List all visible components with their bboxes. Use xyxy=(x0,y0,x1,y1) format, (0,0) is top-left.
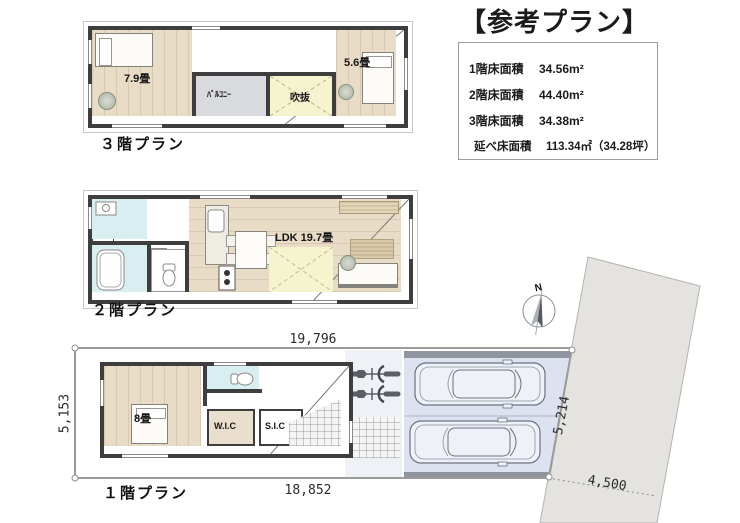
window xyxy=(88,207,92,229)
floor2-label: ２階プラン xyxy=(92,299,177,320)
room-2f-void xyxy=(269,247,333,292)
approach-tiles xyxy=(345,417,400,458)
dim-top: 19,796 xyxy=(268,332,358,347)
window xyxy=(200,195,250,199)
window xyxy=(404,58,408,90)
floor2-plan: S R xyxy=(88,195,413,304)
floor-plan-sheet: N 【参考プラン】 1階床面積 34.56m² 2階床面積 44.40m² 3階… xyxy=(0,0,740,523)
area-label: 延べ床面積 xyxy=(474,134,546,160)
room-label: S.I.C xyxy=(265,421,285,431)
window xyxy=(88,40,92,64)
room-3f-void: 吹抜 xyxy=(270,76,332,116)
window xyxy=(100,380,104,406)
floor1-label: １階プラン xyxy=(103,482,188,503)
void-cross xyxy=(269,247,333,292)
floor3-label: ３階プラン xyxy=(100,133,185,154)
page-title: 【参考プラン】 xyxy=(460,2,649,39)
entrance-door xyxy=(349,421,353,443)
window xyxy=(192,26,220,30)
window xyxy=(342,195,387,199)
stairs xyxy=(92,248,167,274)
room-label: ﾊﾞﾙｺﾆｰ xyxy=(207,89,231,100)
area-row: 3階床面積 34.38m² xyxy=(469,108,657,134)
area-value: 44.40m² xyxy=(539,82,584,108)
window xyxy=(88,84,92,108)
floor3-plan: 7.9畳 ﾊﾞﾙｺﾆｰ 吹抜 5.6畳 xyxy=(88,26,408,128)
room-label: 5.6畳 xyxy=(344,54,370,70)
plant-icon xyxy=(340,255,356,271)
room-label: LDK 19.7畳 xyxy=(275,229,333,245)
room-label: 吹抜 xyxy=(290,89,310,104)
room-3f-balcony: ﾊﾞﾙｺﾆｰ xyxy=(196,76,266,116)
area-table: 1階床面積 34.56m² 2階床面積 44.40m² 3階床面積 34.38m… xyxy=(458,42,658,160)
plant-icon xyxy=(338,84,354,100)
area-label: 3階床面積 xyxy=(469,108,539,134)
window xyxy=(112,124,162,128)
area-row: 2階床面積 44.40m² xyxy=(469,82,657,108)
area-value: 34.56m² xyxy=(539,56,584,82)
room-label: W.I.C xyxy=(214,421,236,431)
window xyxy=(122,454,168,458)
dim-left: 5,153 xyxy=(58,382,73,446)
area-value: 34.38m² xyxy=(539,108,584,134)
window xyxy=(409,219,413,259)
window xyxy=(214,362,246,366)
area-row: 1階床面積 34.56m² xyxy=(469,56,657,82)
stairs xyxy=(104,366,175,394)
rug xyxy=(350,239,394,259)
dim-bottom: 18,852 xyxy=(263,483,353,498)
area-label: 2階床面積 xyxy=(469,82,539,108)
window xyxy=(292,300,337,304)
north-arrow-icon: N xyxy=(523,282,555,336)
north-label: N xyxy=(534,282,543,294)
counter xyxy=(339,201,399,214)
area-value: 113.34㎡（34.28坪） xyxy=(546,134,655,160)
stairs xyxy=(92,30,150,58)
car-icon xyxy=(410,418,540,466)
window xyxy=(344,124,386,128)
area-row-total: 延べ床面積 113.34㎡（34.28坪） xyxy=(469,134,657,160)
carport-top-band xyxy=(404,351,573,358)
car-icon xyxy=(415,360,545,408)
area-label: 1階床面積 xyxy=(469,56,539,82)
floor1-plan: 8畳 W.I.C S.I.C xyxy=(100,362,353,458)
